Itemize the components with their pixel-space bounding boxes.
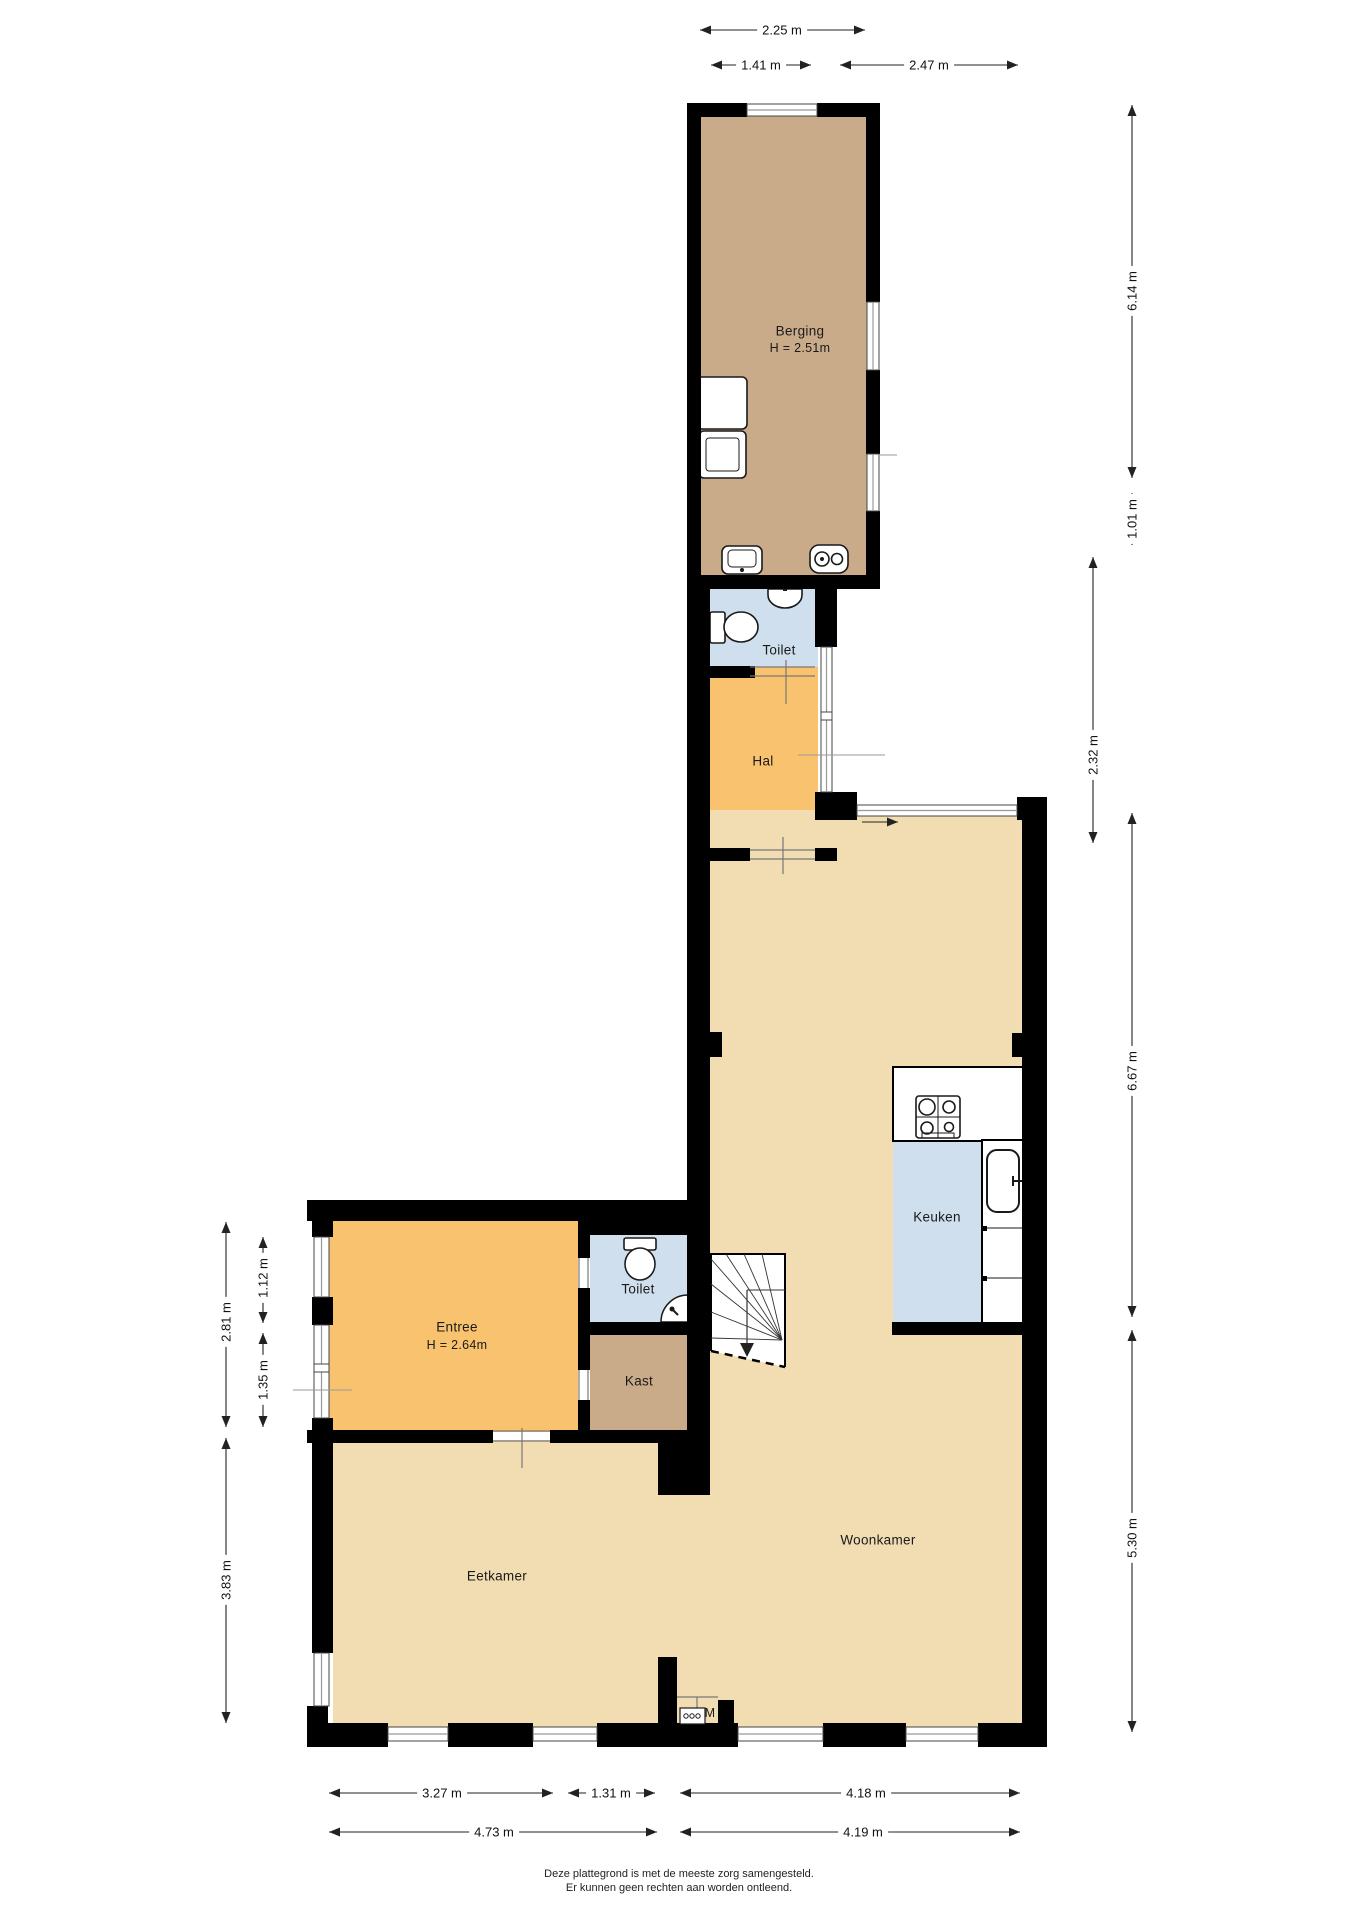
toilet-icon-top bbox=[710, 612, 758, 643]
dim-bottom-3: 4.18 m bbox=[841, 1786, 891, 1801]
dim-bottom-2: 1.31 m bbox=[586, 1786, 636, 1801]
hob-icon bbox=[916, 1096, 960, 1138]
stairs-icon bbox=[711, 1254, 785, 1367]
dryer-icon bbox=[699, 431, 746, 478]
room-label-eetkamer: Eetkamer bbox=[467, 1569, 527, 1584]
boiler-icon bbox=[810, 545, 848, 573]
dim-right-2: 1.01 m bbox=[1125, 494, 1140, 544]
dim-left-1: 2.81 m bbox=[219, 1297, 234, 1347]
dim-right-1: 6.14 m bbox=[1125, 266, 1140, 316]
room-label-kast: Kast bbox=[625, 1374, 653, 1389]
room-label-toilet-bottom: Toilet bbox=[621, 1282, 654, 1297]
dim-bottom-4: 4.73 m bbox=[469, 1825, 519, 1840]
dim-bottom-1: 3.27 m bbox=[417, 1786, 467, 1801]
toilet-icon-bottom bbox=[624, 1238, 656, 1280]
dim-right-5: 5.30 m bbox=[1125, 1513, 1140, 1563]
room-label-keuken: Keuken bbox=[913, 1210, 961, 1225]
disclaimer: Deze plattegrond is met de meeste zorg s… bbox=[379, 1868, 979, 1895]
room-label-woonkamer: Woonkamer bbox=[840, 1533, 915, 1548]
floorplan: Berging H = 2.51m Toilet Hal Keuken Entr… bbox=[0, 0, 1358, 1920]
dim-top-1: 2.25 m bbox=[757, 23, 807, 38]
washer-icon bbox=[697, 377, 747, 429]
dim-left-4: 3.83 m bbox=[219, 1555, 234, 1605]
kitchen-sink-icon bbox=[987, 1150, 1023, 1212]
room-label-berging: Berging bbox=[776, 324, 825, 339]
room-note-berging: H = 2.51m bbox=[770, 341, 831, 355]
room-label-hal: Hal bbox=[752, 754, 773, 769]
dim-left-3: 1.35 m bbox=[256, 1355, 271, 1405]
meter-box-icon bbox=[680, 1708, 705, 1724]
dim-left-2: 1.12 m bbox=[256, 1253, 271, 1303]
sink-icon-berging bbox=[722, 546, 762, 574]
dim-top-3: 2.47 m bbox=[904, 58, 954, 73]
floorplan-drawing bbox=[0, 0, 1358, 1920]
dim-bottom-5: 4.19 m bbox=[838, 1825, 888, 1840]
room-label-toilet-top: Toilet bbox=[762, 643, 795, 658]
room-note-entree: H = 2.64m bbox=[427, 1338, 488, 1352]
dim-right-3: 2.32 m bbox=[1086, 730, 1101, 780]
disclaimer-line-2: Er kunnen geen rechten aan worden ontlee… bbox=[379, 1882, 979, 1896]
dim-top-2: 1.41 m bbox=[736, 58, 786, 73]
room-label-meterkast: M bbox=[705, 1706, 716, 1720]
dim-right-4: 6.67 m bbox=[1125, 1046, 1140, 1096]
disclaimer-line-1: Deze plattegrond is met de meeste zorg s… bbox=[379, 1868, 979, 1882]
room-label-entree: Entree bbox=[436, 1320, 478, 1335]
